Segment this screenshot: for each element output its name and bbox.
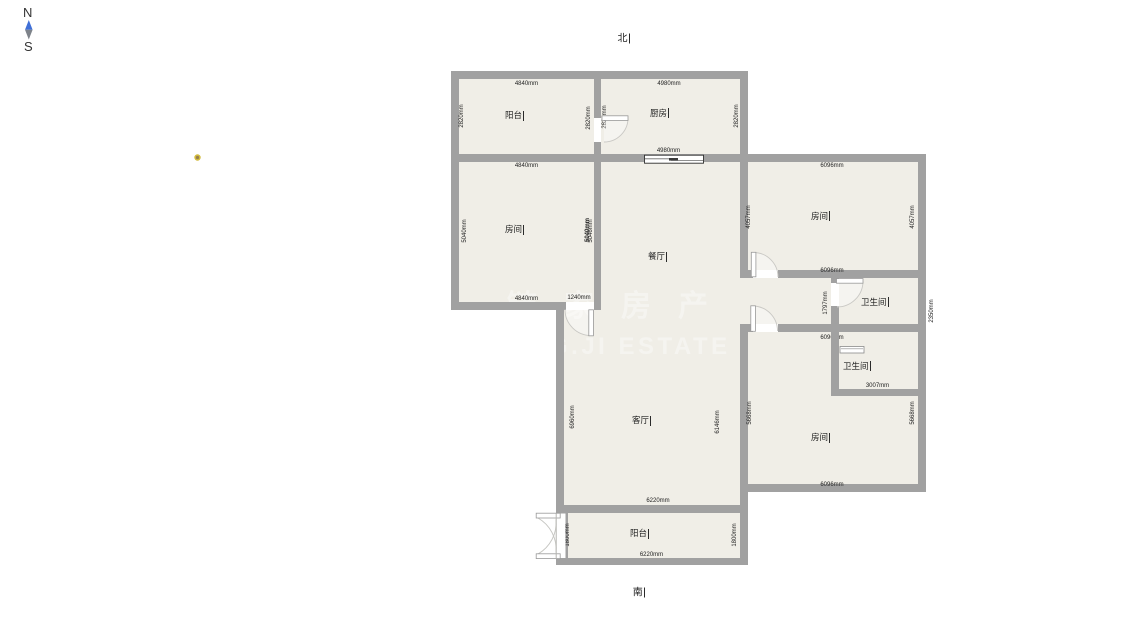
svg-text:N: N <box>23 5 32 20</box>
svg-text:S: S <box>24 39 33 54</box>
